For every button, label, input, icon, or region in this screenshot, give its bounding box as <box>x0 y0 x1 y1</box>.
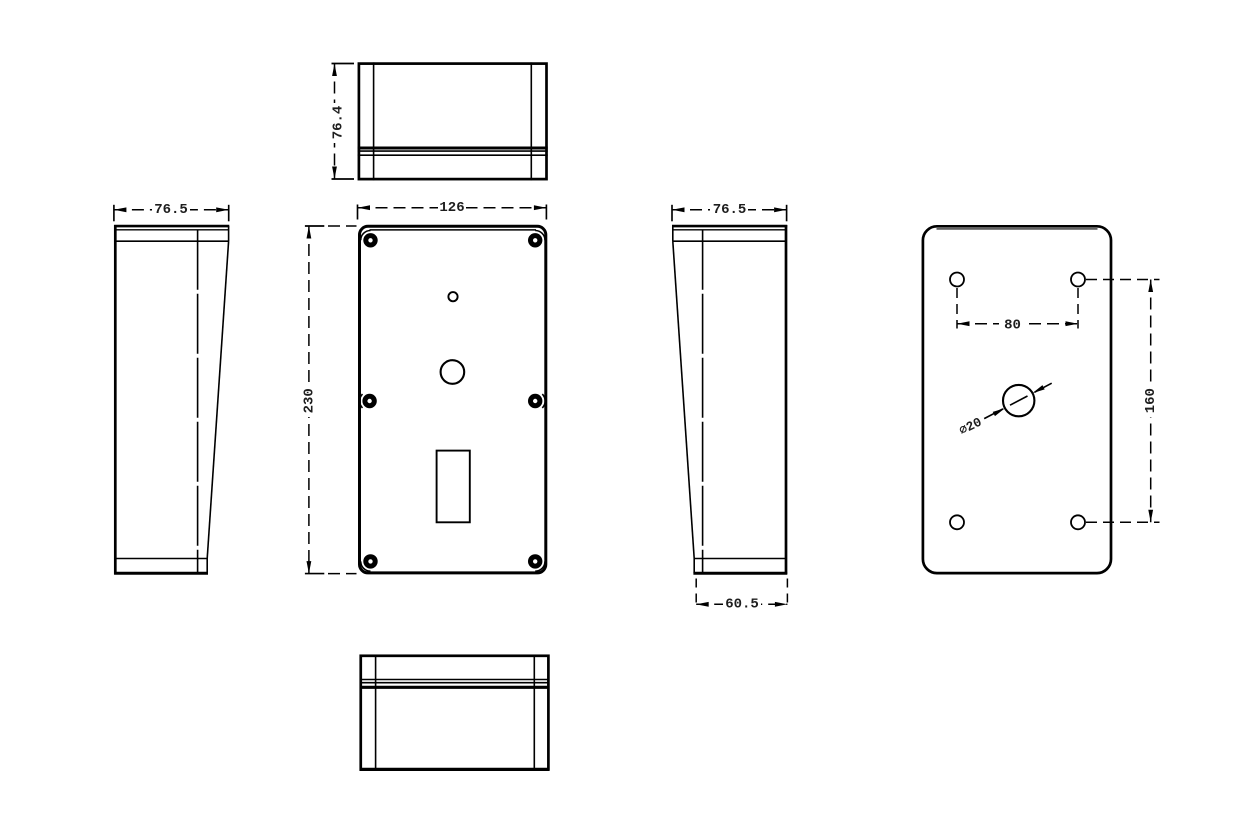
svg-text:76.4: 76.4 <box>331 106 347 140</box>
svg-text:76.5: 76.5 <box>154 202 188 218</box>
svg-text:126: 126 <box>439 200 464 216</box>
svg-text:230: 230 <box>301 388 317 413</box>
svg-text:⌀20: ⌀20 <box>957 415 985 439</box>
svg-text:76.5: 76.5 <box>713 202 747 218</box>
svg-text:80: 80 <box>1004 318 1021 334</box>
svg-text:160: 160 <box>1143 388 1159 413</box>
svg-text:60.5: 60.5 <box>725 597 759 613</box>
